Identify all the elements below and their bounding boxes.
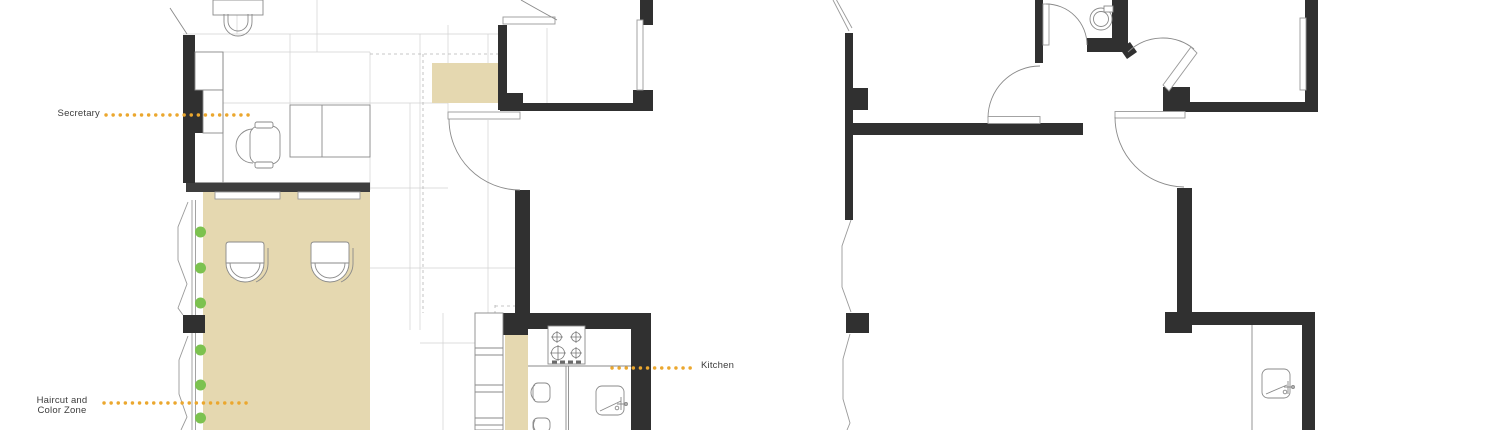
door-wc [1043, 4, 1087, 45]
table-edge [566, 366, 569, 430]
floor-plan-right [833, 0, 1318, 430]
sink-icon [596, 386, 628, 415]
desk [213, 0, 263, 15]
chair-icon [224, 14, 252, 36]
door-livingroom [988, 66, 1040, 124]
stove-icon [548, 326, 585, 364]
door-bathroom [1128, 38, 1197, 91]
floor-plan-drawing [0, 0, 1500, 430]
reception-desk [290, 105, 370, 157]
kitchen-floor-strip [505, 333, 528, 430]
cabinet [203, 90, 223, 133]
haircut-color-zone-area [203, 190, 370, 430]
sink-icon [1262, 369, 1295, 398]
kitchen-chair-icon [533, 418, 550, 430]
secretary-area [195, 0, 370, 183]
office-chair-icon [236, 122, 280, 168]
label-haircut-line2: Color Zone [26, 406, 98, 416]
window-sill [298, 192, 360, 199]
window-sill [215, 192, 280, 199]
window [637, 20, 643, 90]
walls-right-plan [845, 0, 1318, 430]
label-haircut-color-zone: Haircut and Color Zone [26, 396, 98, 417]
door-bedroom [1115, 112, 1185, 188]
facade-diagonal [170, 8, 187, 34]
kitchen-area [475, 313, 631, 430]
floor-plan-left [170, 0, 653, 430]
door-top [503, 0, 557, 24]
partition-band [186, 183, 370, 193]
label-kitchen: Kitchen [701, 361, 734, 371]
entry-mat-area [432, 63, 502, 103]
toilet-icon [1090, 6, 1113, 30]
window [1300, 18, 1306, 90]
door-mid [448, 112, 520, 190]
cabinet [195, 52, 223, 90]
floor-plan-canvas: Secretary Haircut and Color Zone Kitchen [0, 0, 1500, 430]
angled-window [833, 0, 852, 31]
kitchen-chair-icon [531, 383, 550, 402]
kitchen-cabinet-column [475, 313, 503, 430]
label-secretary: Secretary [38, 109, 100, 119]
